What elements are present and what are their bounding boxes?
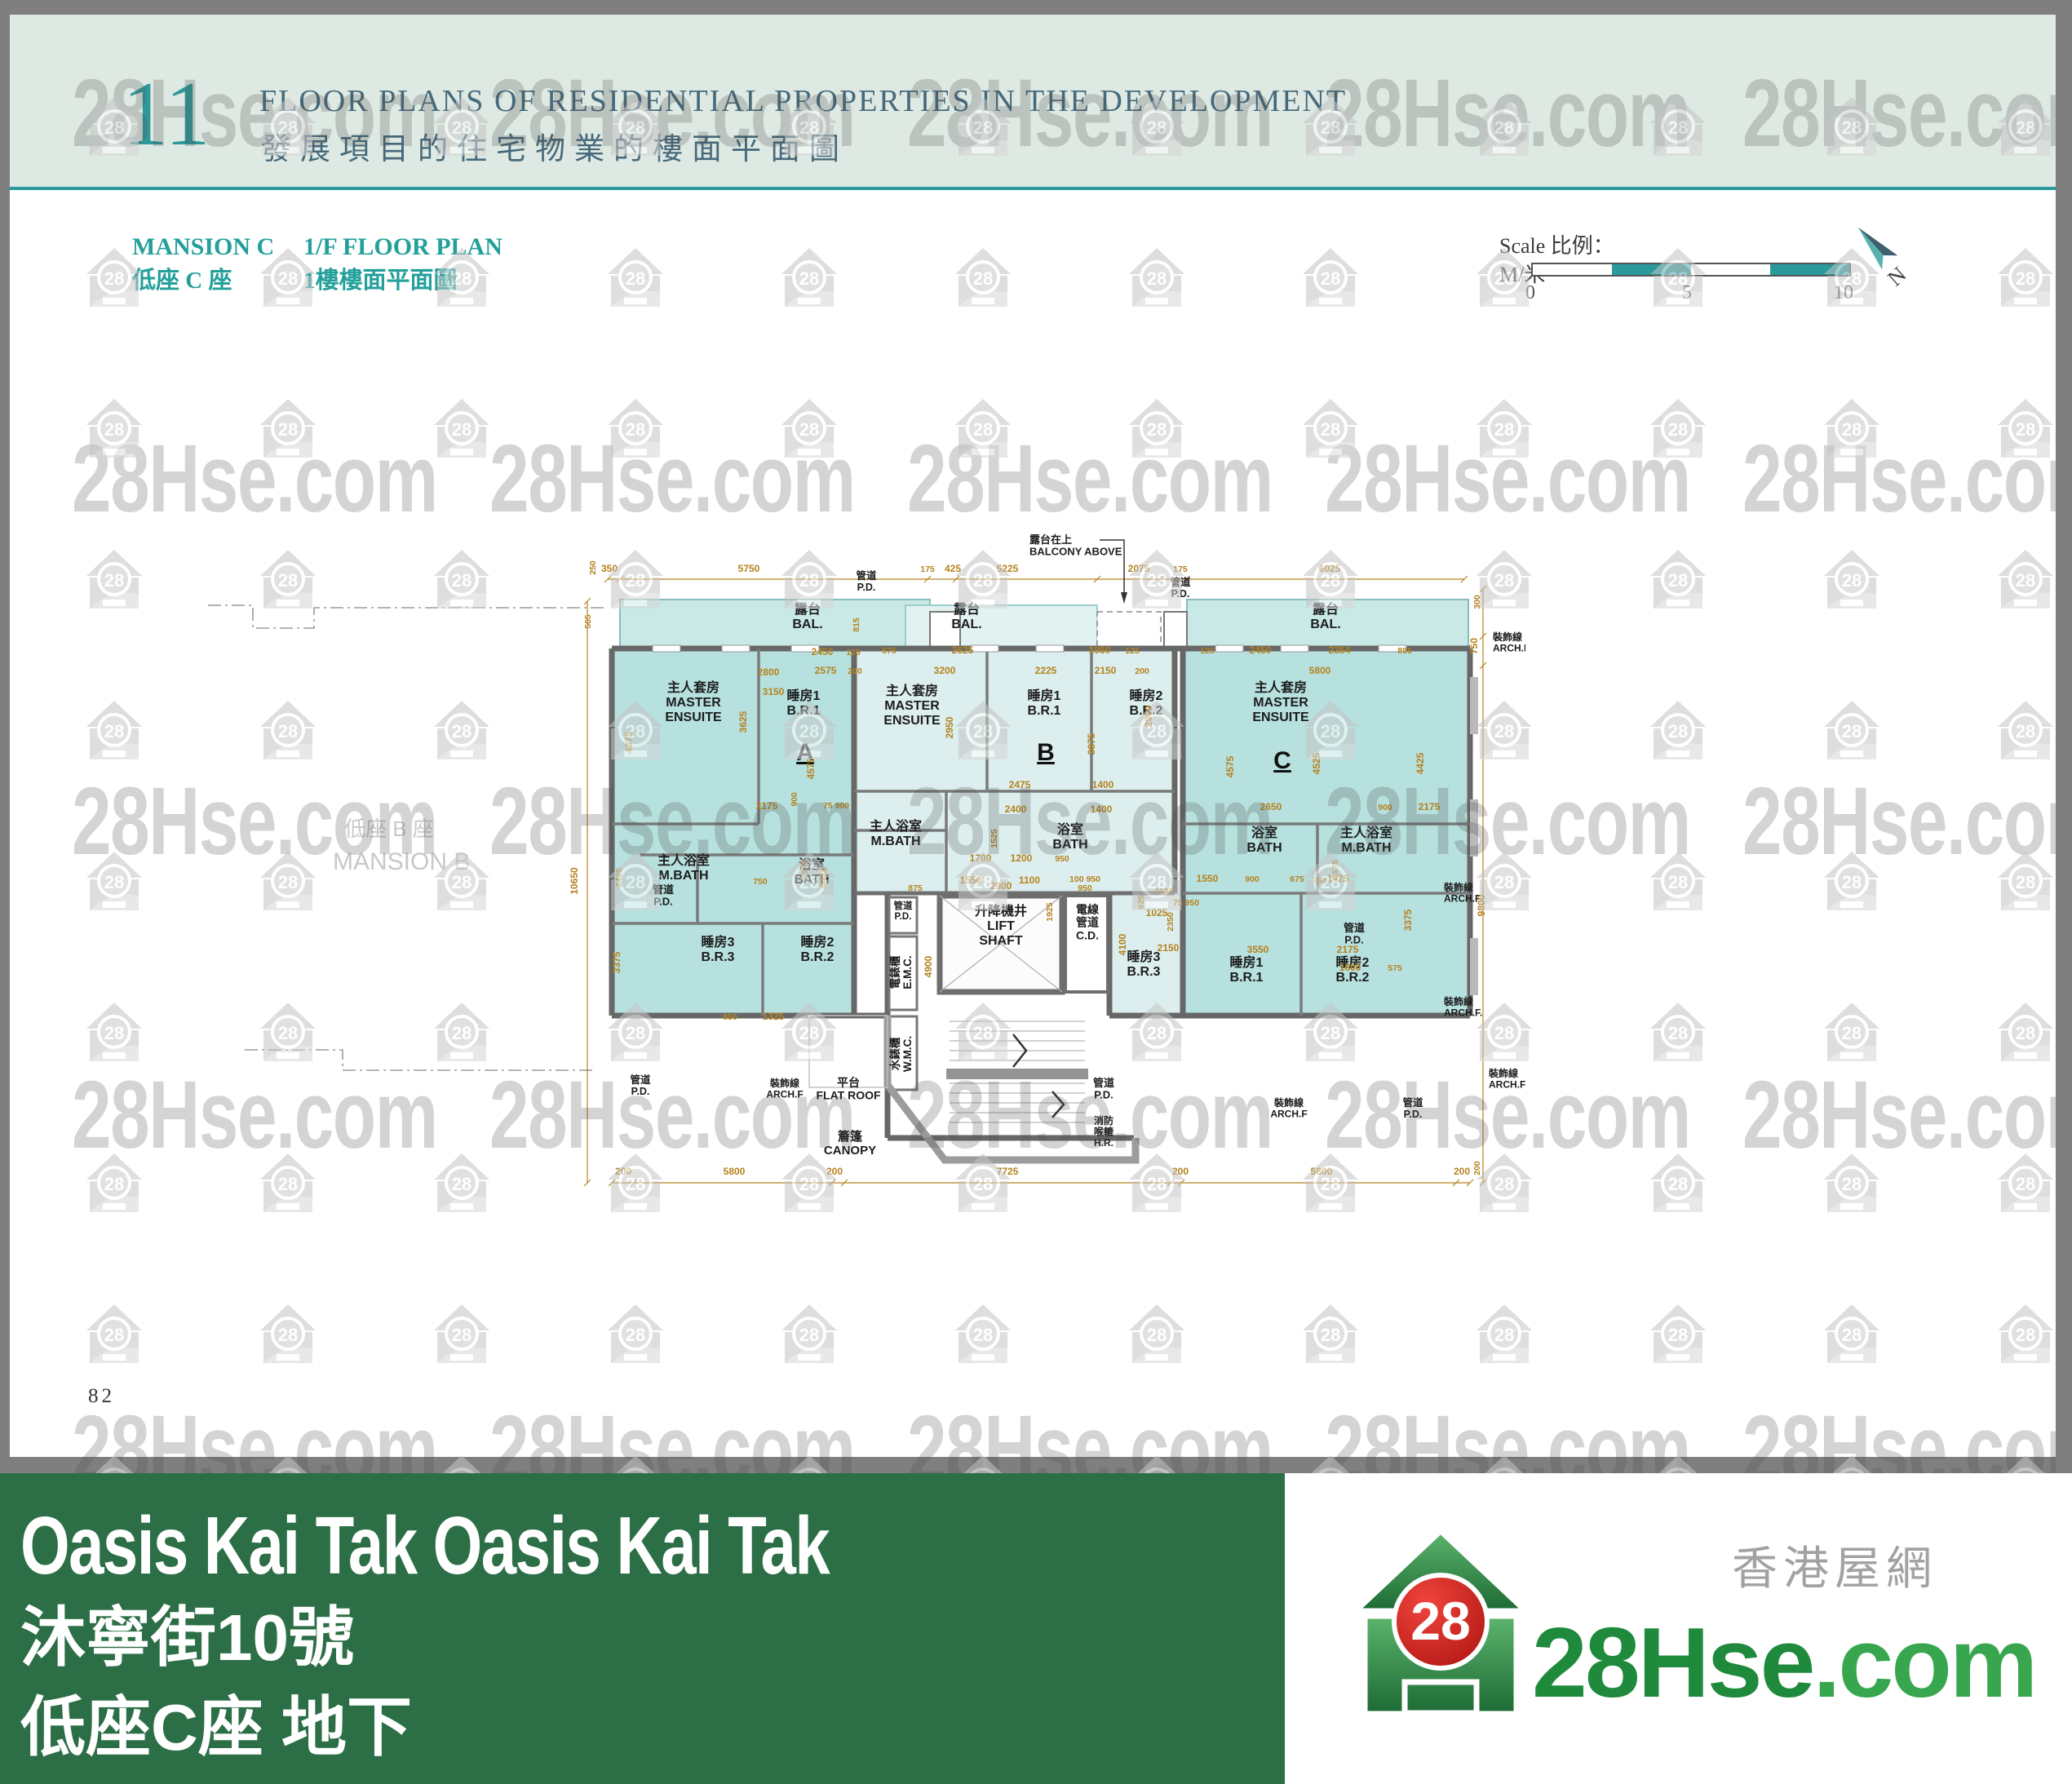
plan-label: 2475 <box>1009 779 1031 790</box>
plan-label: 900 <box>1245 874 1260 884</box>
plan-label: 1100 <box>1019 874 1040 886</box>
plan-label: 管道P.D. <box>856 569 877 593</box>
plan-label: 裝飾線ARCH.F <box>766 1077 803 1100</box>
plan-label: 主人套房MASTERENSUITE <box>883 683 941 728</box>
plan-label: 2175 <box>756 800 778 812</box>
mansion-label-en: MANSION C <box>132 233 274 261</box>
plan-label: 1925 <box>1045 902 1055 922</box>
plan-label: 簷篷CANOPY <box>824 1129 876 1158</box>
plan-label: 2350 <box>1166 912 1175 932</box>
balcony-above-outline <box>1097 612 1161 649</box>
stair-landing <box>946 1069 1088 1079</box>
plan-label: 75 950 <box>1173 898 1199 908</box>
plan-label: 3375 <box>1402 909 1414 931</box>
balcony-above-arrow <box>1121 592 1127 604</box>
page-title-zh: 發展項目的住宅物業的樓面平面圖 <box>261 124 848 168</box>
plan-label: 3875 <box>1086 733 1097 755</box>
plan-label: 睡房3B.R.3 <box>1127 949 1161 979</box>
plan-label: 125 <box>846 648 861 657</box>
plan-label: 200 <box>826 1166 843 1177</box>
plan-label: 浴室BATH <box>1052 821 1087 852</box>
plan-label: 1550 <box>1197 873 1219 884</box>
plan-label: B <box>1037 739 1055 766</box>
header-rule <box>10 187 2056 190</box>
plan-label: 管道P.D. <box>630 1073 651 1097</box>
plan-label: 200 <box>848 666 862 676</box>
pd-notch-bc <box>1164 612 1187 649</box>
plan-label: 575 <box>1388 963 1402 973</box>
plan-label: 3550 <box>1247 944 1269 955</box>
svg-text:N: N <box>1883 262 1911 290</box>
plan-label: 5225 <box>997 563 1019 574</box>
plan-label: 5800 <box>1309 665 1331 676</box>
plan-label: 1575 <box>800 860 810 879</box>
plan-label: 4900 <box>923 955 934 977</box>
plan-label: 睡房2B.R.2 <box>801 934 835 964</box>
plan-label: 2450 <box>812 646 834 657</box>
plan-label: 200 <box>1135 666 1149 676</box>
plan-label: 管道P.D. <box>1344 922 1365 946</box>
scale-tick-0: 0 <box>1525 282 1535 304</box>
plan-label: 管道P.D. <box>1170 576 1191 600</box>
plan-label: 2450 <box>1250 644 1272 656</box>
section-number: 11 <box>122 69 210 160</box>
plan-label: 4375 <box>623 731 635 753</box>
plan-label: 5800 <box>724 1166 746 1177</box>
plan-label: 電線管道C.D. <box>1076 903 1099 941</box>
plan-label: 125 <box>1200 646 1215 656</box>
plan-label: 1600 <box>1339 962 1361 973</box>
plan-label: 175 <box>1173 564 1188 574</box>
plan-label: 主人浴室M.BATH <box>657 852 710 883</box>
scale-label: Scale 比例： <box>1499 229 1614 259</box>
plan-label: 565 <box>583 614 593 629</box>
plan-label: 主人套房MASTERENSUITE <box>665 680 722 724</box>
plan-label: 3375 <box>611 951 622 973</box>
plan-label: 300 <box>1472 595 1482 609</box>
plan-label: 1425 <box>1327 873 1349 884</box>
page-title: FLOOR PLANS OF RESIDENTIAL PROPERTIES IN… <box>259 83 1347 119</box>
development-address: 沐寧街10號 <box>20 1585 354 1680</box>
plan-label: 2400 <box>1005 803 1027 815</box>
plan-label: 2075 <box>1128 563 1150 574</box>
plan-label: 1400 <box>1092 779 1114 790</box>
plan-label: 2900 <box>1143 705 1154 727</box>
plan-label: 750 <box>753 877 768 887</box>
28hse-logo-icon: 28 <box>1354 1530 1527 1720</box>
floorplan-label-en: 1/F FLOOR PLAN <box>303 233 503 261</box>
plan-label: 896 <box>1397 646 1412 656</box>
plan-label: 2175 <box>1337 944 1359 955</box>
plan-label: 1025 <box>1146 907 1168 919</box>
plan-label: 睡房1B.R.1 <box>1230 954 1264 985</box>
plan-label: 900 <box>790 792 799 807</box>
plan-label: 3625 <box>737 711 749 733</box>
plan-label: 管道P.D. <box>1402 1096 1423 1120</box>
plan-label: 主人浴室M.BATH <box>870 818 922 848</box>
plan-label: 電錶櫃E.M.C. <box>888 955 914 989</box>
plan-label: 睡房1B.R.1 <box>787 688 821 718</box>
floor-plan-drawing: 主人套房MASTERENSUITE睡房1B.R.1A主人浴室M.BATH浴室BA… <box>196 530 1525 1207</box>
plan-label: 裝飾線ARCH.F <box>1270 1096 1307 1119</box>
plan-label: 2354 <box>1329 644 1351 656</box>
scale-tick-5: 5 <box>1682 282 1692 304</box>
floorplan-label-zh: 1樓樓面平面圖 <box>303 261 458 295</box>
plan-label: 1550 <box>960 874 982 886</box>
svg-text:28: 28 <box>1410 1591 1470 1651</box>
plan-label: 睡房3B.R.3 <box>702 934 735 964</box>
plan-label: 815 <box>852 618 861 632</box>
plan-label: MANSION B <box>333 848 470 875</box>
plan-label: 浴室BATH <box>1246 825 1282 855</box>
plan-label: 管道P.D. <box>894 900 913 922</box>
plan-label: 875 <box>908 883 923 893</box>
28hse-brand: 28Hse.com <box>1532 1605 2035 1720</box>
plan-label: 950 <box>1078 883 1092 893</box>
plan-label: 主人套房MASTERENSUITE <box>1252 680 1309 724</box>
plan-label: 1125 <box>1155 887 1174 896</box>
plan-label: 1525 <box>990 829 999 848</box>
plan-label: 主人浴室M.BATH <box>1340 825 1392 855</box>
unit-c-area <box>1183 649 1470 1016</box>
screenshot-root: 11 FLOOR PLANS OF RESIDENTIAL PROPERTIES… <box>0 0 2072 1784</box>
plan-label: 裝飾線ARCH.F <box>1488 1067 1525 1090</box>
plan-label: 2900 <box>990 880 1012 892</box>
plan-label: 露台在上BALCONY ABOVE <box>1029 533 1122 558</box>
plan-label: 575 <box>882 646 897 656</box>
plan-label: 平台FLAT ROOF <box>816 1076 881 1102</box>
plan-label: 1325 <box>763 1011 785 1022</box>
plan-label: C <box>1273 747 1291 774</box>
plan-label: 5750 <box>738 563 760 574</box>
scale-bar <box>1531 263 1851 277</box>
north-arrow-icon: N <box>1850 219 1920 300</box>
plan-label: 9800 <box>1476 894 1487 916</box>
balcony-a <box>620 600 930 649</box>
plan-label: 4575 <box>1224 755 1236 777</box>
plan-label: 4425 <box>817 866 829 888</box>
plan-label: 2425 <box>614 868 624 888</box>
plan-label: 350 <box>601 563 618 574</box>
plan-label: 2150 <box>1158 942 1180 954</box>
plan-label: 2625 <box>952 644 974 656</box>
plan-label: 900 <box>1378 803 1392 812</box>
plan-label: 2650 <box>1260 801 1282 812</box>
plan-label: 5800 <box>1311 1166 1333 1177</box>
plan-label: 露台BAL. <box>1310 601 1340 631</box>
plan-label: 裝飾線ARCH.F <box>1492 631 1525 653</box>
plan-label: 1200 <box>1011 852 1033 864</box>
plan-label: 4525 <box>1311 752 1322 774</box>
plan-label: 露台BAL. <box>951 601 981 631</box>
plan-label: 7725 <box>997 1166 1019 1177</box>
plan-label: 1400 <box>1091 803 1113 815</box>
plan-label: 850 <box>723 1012 737 1022</box>
plan-label: 6025 <box>1319 563 1341 574</box>
brand-tld: .com <box>1813 1607 2036 1718</box>
plan-label: 250 <box>588 560 598 575</box>
plan-label: 200 <box>1472 1161 1482 1175</box>
plan-label: 10650 <box>569 867 580 895</box>
mansion-label-zh: 低座 C 座 <box>132 261 232 295</box>
page-number: 82 <box>88 1385 115 1408</box>
plan-label: 管道P.D. <box>1093 1077 1114 1101</box>
plan-label: 200 <box>1172 1166 1189 1177</box>
plan-label: 4575 <box>805 757 817 779</box>
plan-label: 1950 <box>1089 644 1111 656</box>
plan-label: 175 <box>920 564 935 574</box>
plan-label: 2150 <box>1095 665 1117 676</box>
plan-label: 950 <box>1055 854 1069 864</box>
plan-label: 3150 <box>763 686 785 697</box>
plan-label: 200 <box>1454 1166 1470 1177</box>
plan-label: 750 <box>1313 876 1327 886</box>
plan-label: 125 <box>1125 646 1140 656</box>
plan-label: 4100 <box>1117 933 1128 955</box>
plan-label: 低座 B 座 <box>344 817 434 841</box>
plan-label: 2800 <box>758 666 780 678</box>
brand-name: 28Hse <box>1532 1607 1813 1718</box>
plan-label: 水錶櫃W.M.C. <box>888 1036 914 1072</box>
plan-label: 裝飾線ARCH.F. <box>1443 995 1482 1018</box>
plan-label: 3200 <box>934 665 956 676</box>
plan-label: 2225 <box>1035 665 1057 676</box>
development-name: Oasis Kai Tak Oasis Kai Tak <box>20 1499 829 1593</box>
plan-label: 75 900 <box>823 801 849 811</box>
plan-label: 睡房1B.R.1 <box>1028 688 1061 718</box>
plan-label: 675 <box>1290 874 1304 884</box>
plan-label: 消防喉轆H.R. <box>1094 1114 1113 1149</box>
plan-label: 2575 <box>815 665 837 676</box>
plan-label: 4425 <box>1415 752 1426 774</box>
plan-label: 管道P.D. <box>653 883 674 908</box>
plan-label: 200 <box>615 1166 631 1177</box>
plan-label: 925 <box>1136 895 1146 910</box>
plan-label: 2950 <box>944 716 955 738</box>
brand-tagline: 香港屋網 <box>1732 1532 1937 1598</box>
plan-label: 露台BAL. <box>792 601 822 631</box>
development-block-floor: 低座C座 地下 <box>20 1675 412 1769</box>
arch-fins <box>1470 677 1478 995</box>
plan-label: 750 <box>1468 638 1480 654</box>
plan-label: 425 <box>945 563 961 574</box>
plan-label: 2175 <box>1419 801 1441 812</box>
plan-label: 1700 <box>970 852 992 864</box>
